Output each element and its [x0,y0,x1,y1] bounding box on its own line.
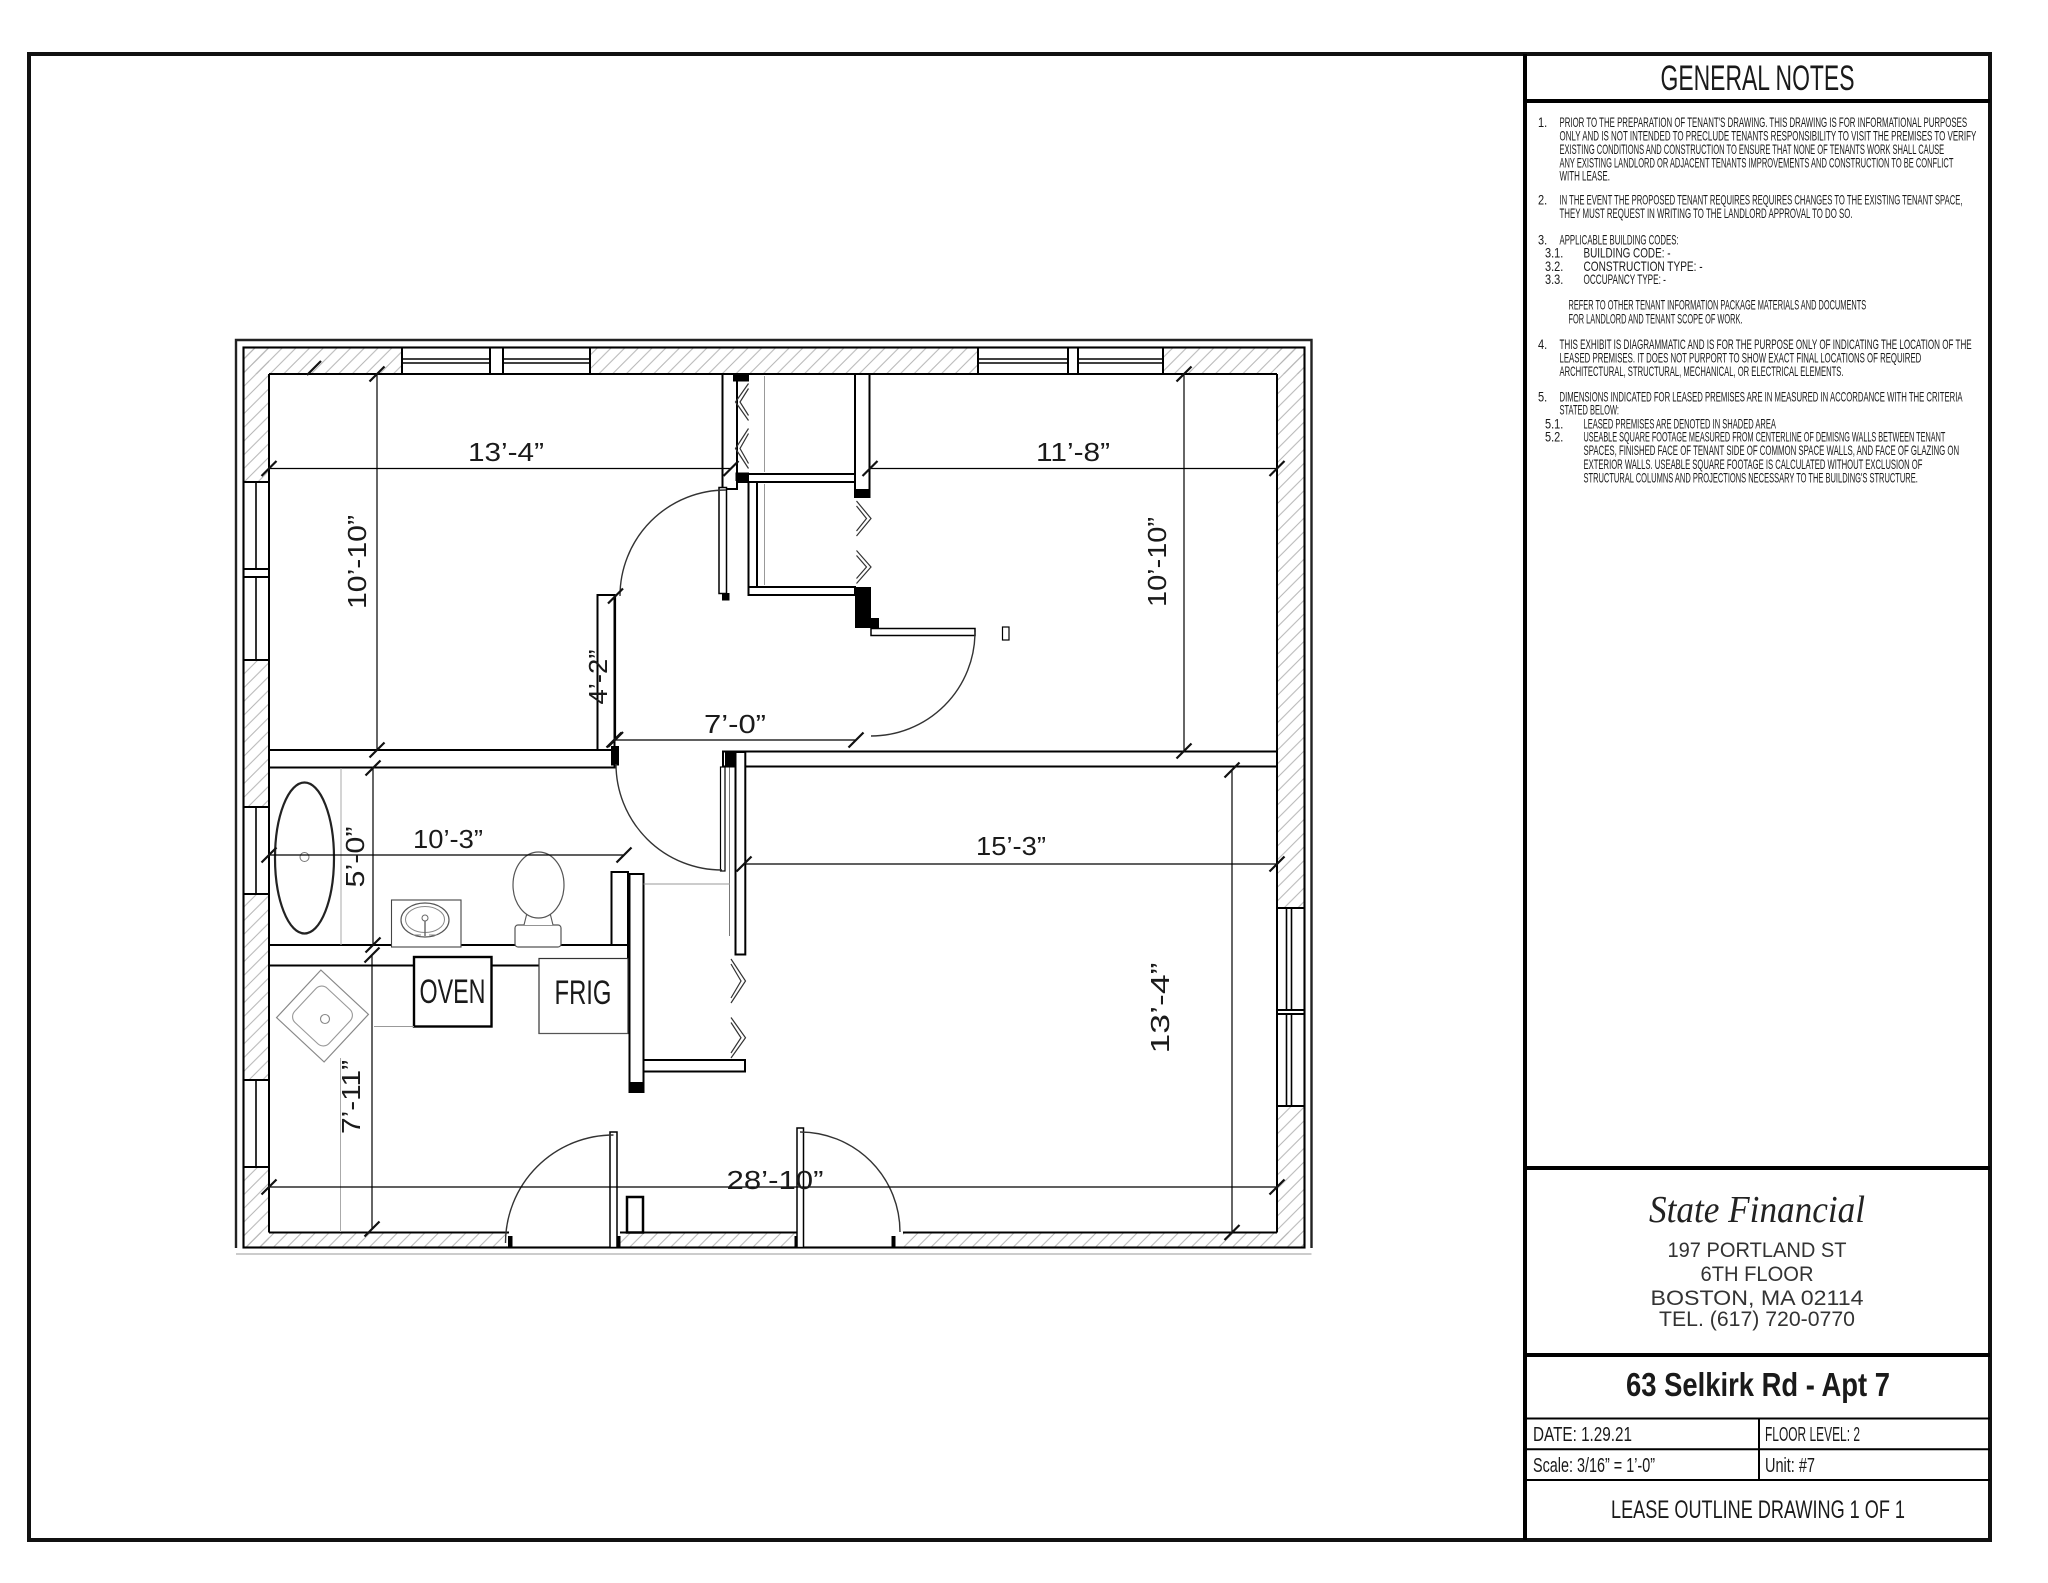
svg-text:ANY EXISTING LANDLORD OR ADJAC: ANY EXISTING LANDLORD OR ADJACENT TENANT… [1560,155,1954,170]
svg-text:28’-10”: 28’-10” [727,1165,824,1195]
svg-text:13’-4”: 13’-4” [468,437,544,467]
svg-text:SPACES, FINISHED FACE OF TENAN: SPACES, FINISHED FACE OF TENANT SIDE OF … [1584,443,1960,458]
svg-text:5’-0”: 5’-0” [340,827,370,888]
svg-text:3.3.: 3.3. [1545,272,1563,287]
svg-text:State Financial: State Financial [1649,1189,1865,1231]
svg-text:197 PORTLAND ST: 197 PORTLAND ST [1668,1239,1847,1262]
svg-text:Unit: #7: Unit: #7 [1765,1455,1815,1477]
svg-text:7’-0”: 7’-0” [704,709,766,739]
svg-text:4’-2”: 4’-2” [583,650,613,705]
svg-text:LEASED PREMISES. IT DOES NOT: LEASED PREMISES. IT DOES NOT PURPORT TO … [1560,350,1922,365]
svg-text:TEL. (617) 720-0770: TEL. (617) 720-0770 [1659,1308,1855,1331]
svg-text:10’-10”: 10’-10” [1142,517,1172,607]
svg-text:THEY MUST REQUEST IN WRITING: THEY MUST REQUEST IN WRITING TO THE LAND… [1560,206,1853,221]
svg-text:DIMENSIONS INDICATED FOR LEASE: DIMENSIONS INDICATED FOR LEASED PREMISES… [1560,390,1964,405]
svg-text:6TH FLOOR: 6TH FLOOR [1701,1263,1814,1286]
svg-text:13’-4”: 13’-4” [1145,963,1175,1054]
svg-text:STATED BELOW:: STATED BELOW: [1560,403,1620,418]
svg-text:FOR LANDLORD AND TENANT SCOPE: FOR LANDLORD AND TENANT SCOPE OF WORK. [1569,312,1743,327]
svg-text:1.: 1. [1538,115,1547,130]
svg-text:5.: 5. [1538,390,1547,405]
svg-text:10’-10”: 10’-10” [342,515,372,609]
svg-text:5.2.: 5.2. [1545,430,1563,445]
svg-text:LEASE OUTLINE DRAWING 1 OF 1: LEASE OUTLINE DRAWING 1 OF 1 [1611,1496,1905,1524]
svg-text:GENERAL NOTES: GENERAL NOTES [1661,59,1855,98]
svg-text:DATE: 1.29.21: DATE: 1.29.21 [1533,1424,1632,1446]
svg-text:10’-3”: 10’-3” [413,824,483,854]
svg-text:WITH LEASE.: WITH LEASE. [1560,169,1610,184]
svg-text:11’-8”: 11’-8” [1036,437,1110,467]
svg-text:15’-3”: 15’-3” [976,831,1046,861]
svg-text:2.: 2. [1538,192,1547,207]
svg-text:STRUCTURAL COLUMNS AND PROJECT: STRUCTURAL COLUMNS AND PROJECTIONS NECES… [1584,470,1918,485]
svg-text:FRIG: FRIG [555,974,612,1012]
svg-text:7’-11”: 7’-11” [336,1060,366,1134]
svg-text:OVEN: OVEN [420,973,486,1011]
svg-text:REFER TO OTHER TENANT INFORMAT: REFER TO OTHER TENANT INFORMATION PACKAG… [1569,298,1867,313]
svg-text:OCCUPANCY TYPE: -: OCCUPANCY TYPE: - [1584,272,1666,287]
svg-text:BOSTON, MA 02114: BOSTON, MA 02114 [1651,1287,1864,1310]
svg-text:Scale: 3/16” = 1’-0”: Scale: 3/16” = 1’-0” [1533,1455,1655,1477]
svg-text:63 Selkirk Rd - Apt 7: 63 Selkirk Rd - Apt 7 [1626,1366,1890,1403]
svg-text:FLOOR LEVEL: 2: FLOOR LEVEL: 2 [1765,1424,1860,1446]
svg-text:4.: 4. [1538,337,1547,352]
svg-text:ARCHITECTURAL, STRUCTURAL, MEC: ARCHITECTURAL, STRUCTURAL, MECHANICAL, O… [1560,364,1844,379]
